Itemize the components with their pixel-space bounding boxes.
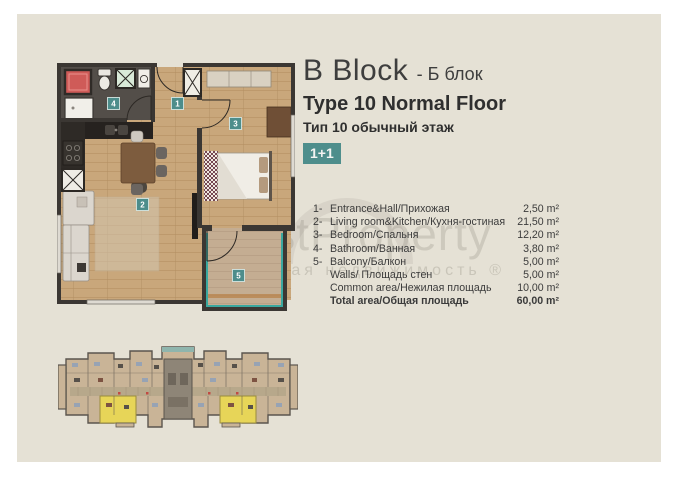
apartment-floor-plan: 1 2 3 4 5 — [57, 63, 295, 311]
building-top-strip — [162, 347, 194, 352]
balcony-stub-left — [116, 423, 134, 427]
shaft-hall — [184, 69, 201, 96]
block-title-ru: - Б блок — [417, 64, 483, 84]
area-row-bathroom: 4- Bathroom/Ванная 3,80 m² — [313, 243, 559, 256]
svg-text:5: 5 — [236, 272, 241, 281]
area-row-balcony: 5- Balcony/Балкон 5,00 m² — [313, 256, 559, 269]
building-floor-overview — [58, 345, 298, 435]
area-table: 1- Entrance&Hall/Прихожая 2,50 m² 2- Liv… — [313, 203, 559, 309]
brochure-sheet: WestProperty зарубежная недвижимость ® B… — [17, 14, 661, 462]
core — [164, 359, 192, 419]
wardrobe — [267, 107, 291, 137]
sofa — [63, 191, 94, 281]
block-title-en: B Block — [303, 54, 408, 87]
svg-text:3: 3 — [233, 120, 238, 129]
area-row-common: Common area/Нежилая площадь 10,00 m² — [313, 282, 559, 295]
header: B Block - Б блок Type 10 Normal Floor Ти… — [303, 54, 506, 164]
building-wing-right — [290, 365, 298, 409]
svg-text:2: 2 — [140, 201, 145, 210]
block-title-row: B Block - Б блок — [303, 54, 506, 88]
area-row-walls: Walls/ Площадь стен 5,00 m² — [313, 269, 559, 282]
area-row-living: 2- Living room&Kitchen/Кухня-гостиная 21… — [313, 216, 559, 229]
balcony-mat — [207, 294, 283, 298]
highlighted-unit-left — [100, 396, 136, 423]
badge-balcony: 5 — [233, 270, 245, 282]
layout-type-badge: 1+1 — [303, 143, 341, 164]
badge-bathroom: 4 — [108, 98, 120, 110]
toilet — [98, 69, 111, 90]
stove — [63, 141, 83, 165]
svg-text:4: 4 — [111, 100, 116, 109]
washbasin-unit — [65, 98, 93, 119]
area-row-bedroom: 3- Bedroom/Спальня 12,20 m² — [313, 229, 559, 242]
building-wing-left — [58, 365, 66, 409]
area-row-total: Total area/Общая площадь 60,00 m² — [313, 295, 559, 308]
badge-bedroom: 3 — [230, 118, 242, 130]
highlighted-unit-right — [220, 396, 256, 423]
bedroom-shelf — [207, 71, 271, 87]
basin-drain — [72, 107, 75, 110]
shaft-kitchen — [62, 169, 84, 191]
bed — [218, 151, 272, 201]
badge-living: 2 — [137, 199, 149, 211]
badge-hall: 1 — [172, 98, 184, 110]
shower-tray — [65, 70, 91, 94]
type-title-ru: Тип 10 обычный этаж — [303, 119, 506, 135]
balcony-stub-right — [222, 423, 240, 427]
area-row-entrance: 1- Entrance&Hall/Прихожая 2,50 m² — [313, 203, 559, 216]
type-title-en: Type 10 Normal Floor — [303, 93, 506, 116]
living-rug — [95, 197, 159, 271]
shaft-bathroom — [116, 69, 135, 88]
bedroom-rug — [204, 151, 218, 201]
svg-text:1: 1 — [175, 100, 180, 109]
washing-machine — [138, 69, 150, 88]
